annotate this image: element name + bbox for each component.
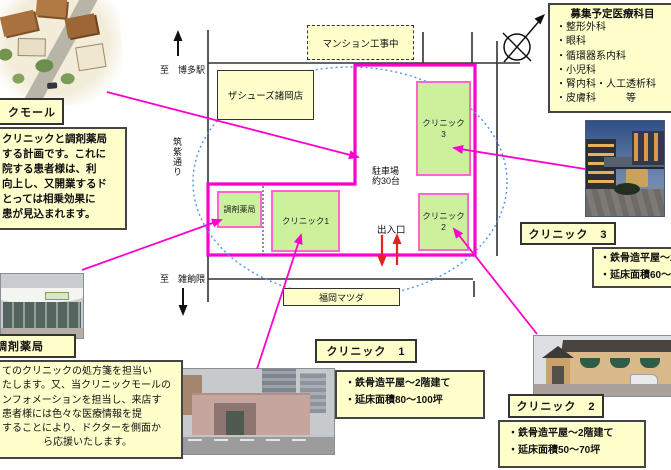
shoes-store-label: ザシューズ諸岡店 xyxy=(228,88,304,102)
plan-line: とっては相乗効果に xyxy=(2,192,125,207)
map-clinic1-label: クリニック1 xyxy=(282,216,329,227)
compass-icon xyxy=(503,14,545,62)
pharmacy-desc-line: 患者様には色々な医療情報を提 xyxy=(2,408,181,422)
mall-plan-note-box: クリニックと調剤薬局 する計画です。これに 院する患者様は、利 向上し、又開業す… xyxy=(0,127,127,230)
clinic1-photo xyxy=(177,368,335,455)
clinic2-label: クリニック 2 xyxy=(516,398,595,414)
clinic-mall-aerial-illustration xyxy=(0,0,127,111)
plan-line: する計画です。これに xyxy=(2,147,125,162)
recruit-item: ・眼科 xyxy=(556,35,671,49)
clinic3-spec-line: ・鉄骨造平屋～2階建 xyxy=(600,250,671,267)
pharmacy-desc-line: てのクリニックの処方箋を担当い xyxy=(2,365,181,379)
map-pharmacy-block: 調剤薬局 xyxy=(217,191,262,228)
clinic2-label-box: クリニック 2 xyxy=(508,394,604,418)
map-clinic2-label-line2: 2 xyxy=(441,222,446,233)
plan-line: 院する患者様は、利 xyxy=(2,162,125,177)
chikushi-street-label: 筑紫通り xyxy=(171,137,184,177)
plan-line: 患が見込まれます。 xyxy=(2,207,125,222)
north-direction-arrow-icon xyxy=(174,30,183,56)
pharmacy-desc-line: ンフォメーションを担当し、来店す xyxy=(2,394,181,408)
aerial-car xyxy=(47,82,57,89)
recruit-item: ・小児科 xyxy=(556,64,671,78)
pharmacy-sign xyxy=(45,292,69,300)
clinic3-planter xyxy=(614,183,640,195)
aerial-tree xyxy=(12,73,25,84)
clinic3-label-box: クリニック 3 xyxy=(520,222,616,245)
pharmacy-label-box: 調剤薬局 xyxy=(0,334,76,358)
clinic3-spec-line: ・延床面積60～70坪 xyxy=(600,267,671,284)
clinic1-spec-line: ・延床面積80～100坪 xyxy=(345,392,483,409)
construction-label: マンション工事中 xyxy=(322,36,398,50)
map-clinic3-label-line2: 3 xyxy=(441,129,446,140)
clinic1-parking-line xyxy=(188,439,318,441)
clinic1-road xyxy=(178,435,334,455)
map-clinic3-label-line1: クリニック xyxy=(422,118,465,129)
recruit-title: 募集予定医療科目 xyxy=(556,7,671,21)
clinic2-spec-line: ・延床面積50～70坪 xyxy=(508,442,644,459)
aerial-building xyxy=(75,43,106,71)
clinic3-photo xyxy=(585,120,665,217)
entrance-down-arrow-icon xyxy=(378,235,387,267)
map-clinic2-label-line1: クリニック xyxy=(422,211,465,222)
entrance-label: 出入口 xyxy=(377,222,406,236)
south-direction-arrow-icon xyxy=(179,288,188,316)
to-zasshonokuma-label: 至 雑餉隈 xyxy=(160,272,205,285)
pharmacy-canopy xyxy=(1,288,83,302)
clinic1-spec-line: ・鉄骨造平屋～2階建て xyxy=(345,375,483,392)
clinic2-photo xyxy=(533,335,671,397)
map-clinic2-block: クリニック 2 xyxy=(418,193,469,251)
map-clinic1-block: クリニック1 xyxy=(271,190,340,252)
mazda-label: 福岡マツダ xyxy=(319,291,364,304)
pharmacy-desc-line: ら応援いたします。 xyxy=(2,436,181,450)
connector-photo-to-clinic3 xyxy=(454,148,585,169)
entrance-up-arrow-icon xyxy=(393,233,402,265)
map-clinic3-block: クリニック 3 xyxy=(416,81,471,176)
plan-line: 向上し、又開業するド xyxy=(2,177,125,192)
plan-line: クリニックと調剤薬局 xyxy=(2,132,125,147)
clinic2-door xyxy=(552,366,564,384)
parking-label-line2: 約30台 xyxy=(372,174,400,187)
aerial-roof xyxy=(0,10,37,37)
map-pharmacy-label: 調剤薬局 xyxy=(224,204,256,215)
clinic2-spec-box: ・鉄骨造平屋～2階建て ・延床面積50～70坪 xyxy=(498,420,646,468)
clinic1-spec-box: ・鉄骨造平屋～2階建て ・延床面積80～100坪 xyxy=(335,370,485,419)
aerial-building xyxy=(18,38,46,56)
to-hakata-label: 至 博多駅 xyxy=(160,63,205,76)
clinic3-label: クリニック 3 xyxy=(528,226,607,242)
pharmacy-description-box: てのクリニックの処方箋を担当い たします。又、当クリニックモールの ンフォメーシ… xyxy=(0,360,183,459)
pharmacy-photo xyxy=(0,273,84,339)
pharmacy-glass xyxy=(3,302,81,328)
shoes-store-box: ザシューズ諸岡店 xyxy=(217,70,314,120)
clinic1-label-box: クリニック 1 xyxy=(315,339,417,363)
clinic3-spec-box: ・鉄骨造平屋～2階建 ・延床面積60～70坪 xyxy=(592,247,671,288)
construction-site-box: マンション工事中 xyxy=(307,25,414,60)
clinic-mall-label: クモール xyxy=(8,104,56,120)
aerial-tree xyxy=(0,48,13,61)
mazda-box: 福岡マツダ xyxy=(283,288,400,306)
clinic2-spec-line: ・鉄骨造平屋～2階建て xyxy=(508,425,644,442)
site-plan-slide: マンション工事中 ザシューズ諸岡店 福岡マツダ 調剤薬局 クリニック1 クリニッ… xyxy=(0,0,671,470)
recruit-item: ・整形外科 xyxy=(556,21,671,35)
clinic2-porch-roof xyxy=(542,346,574,358)
aerial-roof xyxy=(36,0,67,18)
clinic1-door xyxy=(226,411,244,435)
recruit-item: ・腎内科・人工透析科 xyxy=(556,78,671,92)
aerial-tree xyxy=(60,73,75,85)
pharmacy-label: 調剤薬局 xyxy=(0,338,44,354)
pharmacy-desc-line: することにより、ドクターを側面か xyxy=(2,422,181,436)
clinic1-label: クリニック 1 xyxy=(326,343,405,359)
aerial-roof xyxy=(64,13,97,38)
recruit-item: ・皮膚科 等 xyxy=(556,92,671,106)
recruit-item: ・循環器系内科 xyxy=(556,50,671,64)
clinic-mall-label-box: クモール xyxy=(0,98,64,125)
pharmacy-desc-line: たします。又、当クリニックモールの xyxy=(2,379,181,393)
clinic3-windows xyxy=(634,133,662,161)
recruit-departments-box: 募集予定医療科目 ・整形外科 ・眼科 ・循環器系内科 ・小児科 ・腎内科・人工透… xyxy=(548,3,671,113)
